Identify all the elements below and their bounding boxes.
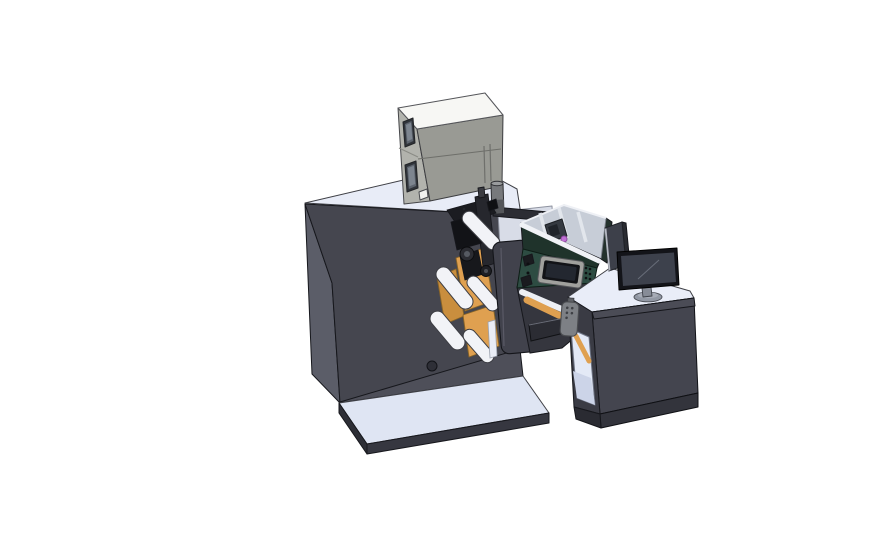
machine-cad-illustration: [40, 16, 888, 538]
pendant-remote: [560, 297, 580, 336]
cabinet-window-lower: [405, 161, 418, 192]
cad-render-canvas: [40, 16, 888, 538]
monitor-neck: [642, 287, 652, 297]
door-gap-sliver: [488, 320, 497, 358]
printhead-post: [478, 187, 485, 198]
machine-front-hole: [427, 361, 437, 371]
cabinet-window-upper: [403, 118, 415, 147]
electrical-cabinet: [398, 93, 503, 204]
hmi-screen: [537, 256, 584, 289]
operator-desk: [568, 268, 698, 428]
